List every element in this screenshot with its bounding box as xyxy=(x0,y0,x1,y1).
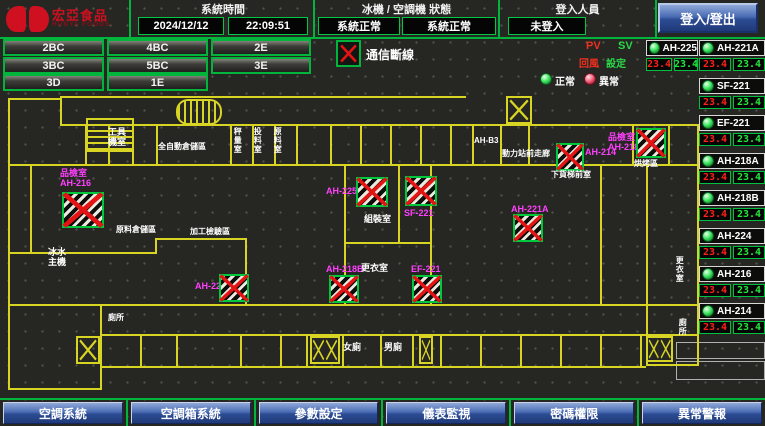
menu-button-ahu-system[interactable]: 空調箱系統 xyxy=(131,402,251,424)
menu-button-alarm[interactable]: 異常警報 xyxy=(642,402,762,424)
device-icon-ah-225[interactable] xyxy=(356,177,388,207)
unit-ef-221-sv: 23.4 xyxy=(733,133,765,146)
system-time-label: 系統時間 xyxy=(133,1,313,17)
brand-name: 宏亞食品 xyxy=(52,9,110,22)
unit-ah-218b-sv: 23.4 xyxy=(733,208,765,221)
unit-ah-224[interactable]: AH-224 xyxy=(699,228,765,244)
chiller-status: 系統正常 xyxy=(318,17,400,35)
wall xyxy=(520,334,522,366)
unit-ah-221a[interactable]: AH-221A xyxy=(699,40,765,56)
wall xyxy=(560,334,562,366)
wall xyxy=(480,334,482,366)
unit-ah-225[interactable]: AH-225 xyxy=(646,40,698,56)
device-icon-ah-224[interactable] xyxy=(219,274,249,302)
sv-name-label: 設定 xyxy=(606,55,626,70)
floor-button-3d[interactable]: 3D xyxy=(3,74,104,91)
unit-ah-216-pv: 23.4 xyxy=(699,284,731,297)
footer-bar: 空調系統 空調箱系統 參數設定 儀表監視 密碼權限 異常警報 xyxy=(0,398,765,426)
wall xyxy=(330,124,332,166)
brand-name-en: HUNYA FOODS xyxy=(52,22,110,29)
pv-name-label: 回風 xyxy=(579,55,599,70)
wall xyxy=(420,124,422,166)
wall xyxy=(8,252,157,254)
unit-ah-225-sv: 23.4 xyxy=(674,58,698,71)
unit-ah-221a-pv: 23.4 xyxy=(699,58,731,71)
unit-ah-218a[interactable]: AH-218A xyxy=(699,153,765,169)
floor-button-2e[interactable]: 2E xyxy=(211,39,311,56)
device-icon-ah-218b[interactable] xyxy=(329,275,359,303)
device-label-ah-225: AH-225 xyxy=(326,186,357,196)
wall xyxy=(155,238,247,240)
wall xyxy=(60,96,466,98)
unit-ah-221a-sv: 23.4 xyxy=(733,58,765,71)
normal-label: 正常 xyxy=(555,73,575,88)
device-label-ah-221a: AH-221A xyxy=(511,204,549,214)
elevator-icon xyxy=(76,336,100,364)
wall xyxy=(360,124,362,166)
system-time-panel: 系統時間 2024/12/12 22:09:51 xyxy=(133,0,315,37)
room-label: 女廁 xyxy=(343,342,361,352)
device-icon-ef-221[interactable] xyxy=(412,275,442,303)
floor-button-1e[interactable]: 1E xyxy=(107,74,208,91)
floor-button-3e[interactable]: 3E xyxy=(211,57,311,74)
room-label: 加工檢驗區 xyxy=(190,227,230,236)
wall xyxy=(8,388,102,390)
unit-status-led xyxy=(702,117,714,129)
wall xyxy=(450,124,452,166)
wall xyxy=(380,334,382,366)
unit-ef-221-pv: 23.4 xyxy=(699,133,731,146)
device-icon-ah-218a[interactable] xyxy=(636,128,666,158)
wall xyxy=(30,164,32,252)
room-label: 秤量室 xyxy=(233,127,242,154)
wall xyxy=(500,124,502,166)
wall xyxy=(668,124,670,166)
menu-button-password-authority[interactable]: 密碼權限 xyxy=(514,402,634,424)
wall xyxy=(100,366,646,368)
comm-loss-label: 通信斷線 xyxy=(366,46,414,63)
wall xyxy=(60,96,62,126)
room-label: 工具機室 xyxy=(108,127,130,148)
unit-ah-218b-pv: 23.4 xyxy=(699,208,731,221)
system-date-display: 2024/12/12 xyxy=(138,17,224,35)
unit-ah-216[interactable]: AH-216 xyxy=(699,266,765,282)
hmi-screen: 宏亞食品 HUNYA FOODS 系統時間 2024/12/12 22:09:5… xyxy=(0,0,765,426)
wall xyxy=(8,98,10,390)
unit-ef-221[interactable]: EF-221 xyxy=(699,115,765,131)
device-icon-ah-214[interactable] xyxy=(556,143,584,171)
wall xyxy=(640,334,642,366)
wall xyxy=(697,124,699,366)
unit-ah-218a-sv: 23.4 xyxy=(733,171,765,184)
wall xyxy=(398,166,400,242)
wall xyxy=(176,334,178,366)
unit-status-led xyxy=(702,230,714,242)
unit-ah-214-pv: 23.4 xyxy=(699,321,731,334)
abnormal-led-icon xyxy=(584,73,596,85)
room-label: 投料室 xyxy=(253,127,262,154)
unit-name: AH-218B xyxy=(717,193,759,204)
unit-name: SF-221 xyxy=(717,81,750,92)
elevator-icon xyxy=(419,336,433,364)
unit-status-led xyxy=(702,155,714,167)
stairs-icon xyxy=(176,99,222,125)
wall xyxy=(8,304,698,306)
empty-slot xyxy=(676,342,765,359)
device-label-ah-218b: AH-218B xyxy=(326,264,364,274)
unit-name: AH-224 xyxy=(717,231,751,242)
wall xyxy=(8,164,698,166)
wall xyxy=(412,334,414,366)
unit-name: AH-218A xyxy=(717,156,759,167)
room-label: 廁所 xyxy=(108,313,124,322)
wall xyxy=(280,334,282,366)
room-label: 原料倉儲區 xyxy=(116,225,156,234)
abnormal-label: 異常 xyxy=(599,73,619,88)
pv-header: PV xyxy=(586,40,601,52)
wall xyxy=(100,334,698,336)
wall xyxy=(646,364,698,366)
floor-button-3bc[interactable]: 3BC xyxy=(3,57,104,74)
unit-status-led xyxy=(702,305,714,317)
room-label: 更衣室 xyxy=(361,263,388,273)
wall xyxy=(155,238,157,254)
wall xyxy=(8,98,62,100)
unit-name: AH-221A xyxy=(717,43,759,54)
menu-button-meter-monitor[interactable]: 儀表監視 xyxy=(386,402,506,424)
header-bar: 宏亞食品 HUNYA FOODS 系統時間 2024/12/12 22:09:5… xyxy=(0,0,765,39)
login-logout-button[interactable]: 登入/登出 xyxy=(658,3,758,33)
unit-status-led xyxy=(702,80,714,92)
unit-ah-218b[interactable]: AH-218B xyxy=(699,190,765,206)
wall xyxy=(230,124,232,166)
device-icon-sf-221[interactable] xyxy=(405,176,437,206)
floor-button-5bc[interactable]: 5BC xyxy=(107,57,208,74)
menu-button-ac-system[interactable]: 空調系統 xyxy=(3,402,123,424)
room-label: 動力站前走廊 xyxy=(502,149,550,158)
unit-ah-214-sv: 23.4 xyxy=(733,321,765,334)
room-label: 冰水主機 xyxy=(48,247,68,268)
device-icon-ah-221a[interactable] xyxy=(513,214,543,242)
login-panel: 登入人員 未登入 xyxy=(500,0,657,37)
elevator-icon xyxy=(310,336,340,364)
unit-ah-216-sv: 23.4 xyxy=(733,284,765,297)
unit-ah-224-sv: 23.4 xyxy=(733,246,765,259)
unit-name: AH-214 xyxy=(717,306,751,317)
elevator-icon xyxy=(506,96,532,124)
normal-led-icon xyxy=(540,73,552,85)
sv-header: SV xyxy=(618,40,633,52)
machine-status-label: 冰機 / 空調機 狀態 xyxy=(315,1,498,17)
floor-button-2bc[interactable]: 2BC xyxy=(3,39,104,56)
logo-mark-icon xyxy=(29,6,49,32)
room-label: 烘烤區 xyxy=(634,159,658,168)
unit-ah-218a-pv: 23.4 xyxy=(699,171,731,184)
login-label: 登入人員 xyxy=(500,1,655,17)
room-label: 組裝室 xyxy=(364,214,391,224)
room-label: AH-B3 xyxy=(474,136,498,145)
unit-sf-221-sv: 23.4 xyxy=(733,96,765,109)
wall xyxy=(100,304,102,390)
elevator-icon xyxy=(646,336,673,362)
device-label-ef-221: EF-221 xyxy=(411,264,441,274)
wall xyxy=(600,164,602,306)
floor-button-4bc[interactable]: 4BC xyxy=(107,39,208,56)
unit-name: AH-216 xyxy=(717,269,751,280)
room-label: 全自動倉儲區 xyxy=(158,142,206,151)
room-label: 原料室 xyxy=(273,127,282,154)
unit-status-led xyxy=(702,268,714,280)
logo-mark-icon xyxy=(6,6,26,32)
wall xyxy=(140,334,142,366)
login-user-display: 未登入 xyxy=(508,17,586,35)
unit-name: EF-221 xyxy=(717,118,750,129)
wall xyxy=(440,334,442,366)
system-clock-display: 22:09:51 xyxy=(228,17,308,35)
unit-name: AH-225 xyxy=(663,43,697,54)
room-label: 更衣室 xyxy=(675,256,684,283)
unit-ah-224-pv: 23.4 xyxy=(699,246,731,259)
unit-sf-221-pv: 23.4 xyxy=(699,96,731,109)
wall xyxy=(296,124,298,166)
wall xyxy=(240,334,242,366)
device-label-ah-216: 品檢室AH-216 xyxy=(60,168,91,189)
unit-status-led xyxy=(702,192,714,204)
unit-sf-221[interactable]: SF-221 xyxy=(699,78,765,94)
room-label: 下貨梯前室 xyxy=(551,170,591,179)
wall xyxy=(528,124,530,166)
unit-ah-214[interactable]: AH-214 xyxy=(699,303,765,319)
device-icon-ah-216[interactable] xyxy=(62,192,104,228)
wall xyxy=(306,334,308,366)
machine-status-panel: 冰機 / 空調機 狀態 系統正常 系統正常 xyxy=(315,0,500,37)
room-label: 廁所 xyxy=(678,318,687,336)
unit-status-led xyxy=(702,42,714,54)
device-label-sf-221: SF-221 xyxy=(404,208,434,218)
wall xyxy=(600,334,602,366)
wall xyxy=(344,242,432,244)
room-label: 男廁 xyxy=(384,342,402,352)
company-logo: 宏亞食品 HUNYA FOODS xyxy=(0,0,131,37)
unit-ah-225-pv: 23.4 xyxy=(646,58,672,71)
menu-button-parameter-setting[interactable]: 參數設定 xyxy=(259,402,379,424)
unit-status-led xyxy=(649,42,660,54)
ahu-status: 系統正常 xyxy=(402,17,496,35)
comm-loss-icon xyxy=(336,40,361,67)
wall xyxy=(390,124,392,166)
